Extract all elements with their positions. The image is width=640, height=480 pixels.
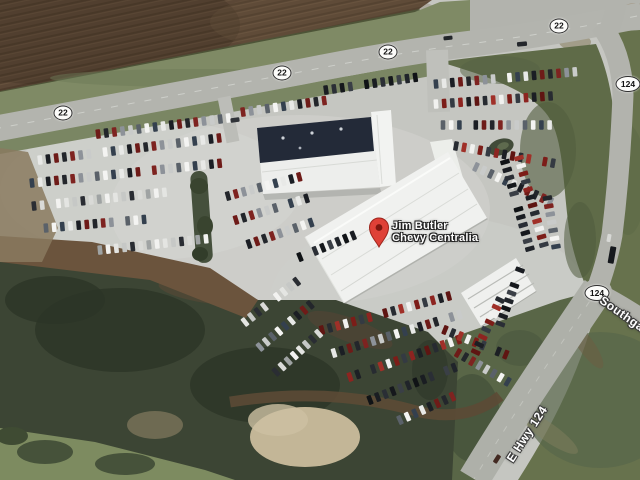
map-marker-pin[interactable] bbox=[368, 217, 390, 248]
route-shield-22: 22 bbox=[273, 66, 292, 81]
map-labels-overlay: Jim Butler Chevy Centralia 2222222212412… bbox=[0, 0, 640, 480]
route-shield-124: 124 bbox=[616, 76, 640, 92]
road-label: Southgate bbox=[597, 293, 640, 341]
satellite-map-viewport[interactable]: Jim Butler Chevy Centralia 2222222212412… bbox=[0, 0, 640, 480]
map-marker-label: Jim Butler Chevy Centralia bbox=[392, 220, 478, 244]
route-shield-22: 22 bbox=[550, 19, 569, 34]
route-shield-22: 22 bbox=[54, 106, 73, 121]
marker-label-line1: Jim Butler bbox=[392, 220, 478, 232]
route-shield-22: 22 bbox=[379, 45, 398, 60]
road-label: E Hwy 124 bbox=[504, 403, 551, 464]
marker-label-line2: Chevy Centralia bbox=[392, 232, 478, 244]
